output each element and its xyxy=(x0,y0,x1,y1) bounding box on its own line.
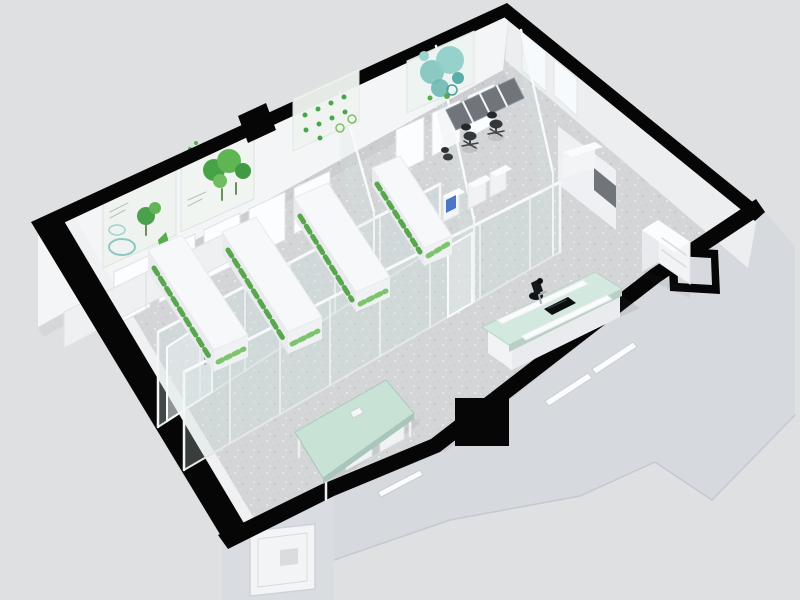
poster3-leaf-dot-7 xyxy=(330,116,335,121)
poster4-cell-2 xyxy=(436,46,464,74)
poster3-leaf-dot-2 xyxy=(316,107,321,112)
poster3-leaf-dot-3 xyxy=(329,101,334,106)
poster4-cell-5 xyxy=(419,51,429,61)
microscope-head xyxy=(537,278,543,284)
wall-pier-se xyxy=(455,398,509,446)
poster1-tree2-icon xyxy=(149,202,161,214)
exterior-door-window xyxy=(280,548,298,566)
office-chair-1-back xyxy=(461,124,471,131)
poster2-canopy4-icon xyxy=(213,174,227,188)
poster3-leaf-dot-9 xyxy=(318,136,323,141)
office-chair-1-seat xyxy=(464,132,477,141)
poster3-leaf-dot-6 xyxy=(317,122,322,127)
poster4-algae-2 xyxy=(428,96,433,101)
poster4-cell-4 xyxy=(452,72,464,84)
poster2-canopy3-icon xyxy=(235,163,251,179)
poster3-leaf-dot-1 xyxy=(303,113,308,118)
poster3-leaf-dot-5 xyxy=(304,128,309,133)
poster3-leaf-dot-4 xyxy=(342,95,347,100)
poster2-dot2-icon xyxy=(194,141,198,145)
office-chair-2-back xyxy=(487,112,497,119)
lab-floorplan-canvas xyxy=(0,0,800,600)
lab-floorplan-render xyxy=(0,0,800,600)
poster3-leaf-dot-8 xyxy=(343,110,348,115)
office-chair-2-seat xyxy=(490,120,503,129)
office-chair-3-seat xyxy=(443,154,453,161)
scene-shapes-group xyxy=(0,0,800,600)
office-chair-3-back xyxy=(441,147,449,153)
